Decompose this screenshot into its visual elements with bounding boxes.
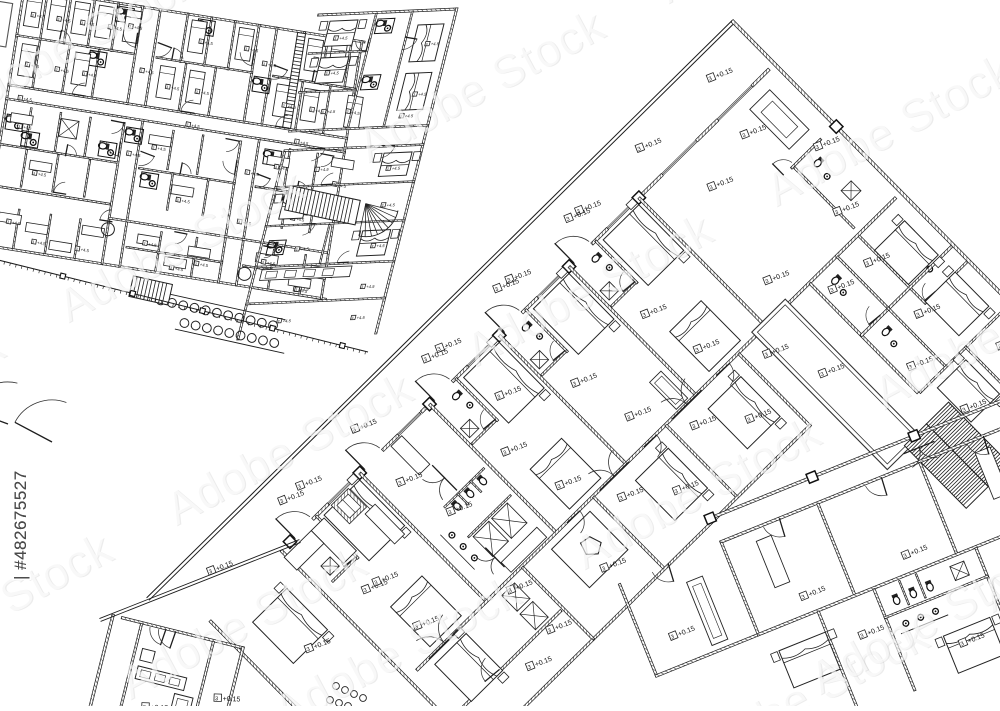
svg-text:3: 3 [215,696,218,702]
svg-text:+0.15: +0.15 [223,696,241,704]
svg-text:| #482675527: | #482675527 [11,470,30,580]
